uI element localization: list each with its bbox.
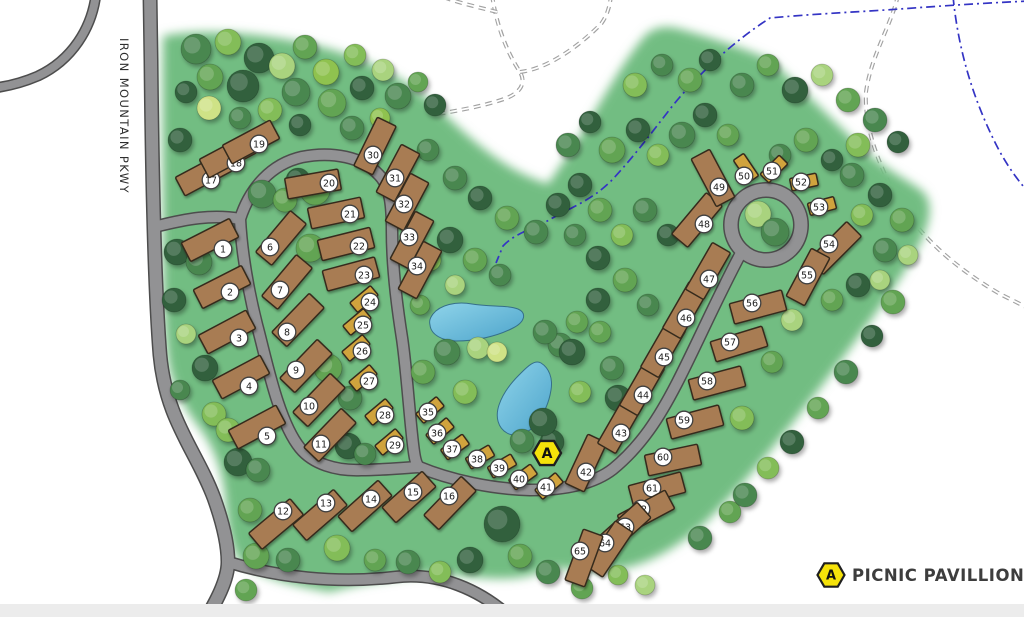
site-number-47: 47 bbox=[703, 274, 715, 285]
site-number-37: 37 bbox=[446, 444, 458, 455]
site-number-20: 20 bbox=[323, 178, 335, 189]
site-number-3: 3 bbox=[236, 333, 242, 344]
tree-highlight bbox=[590, 200, 603, 213]
tree-highlight bbox=[172, 382, 183, 393]
tree-highlight bbox=[251, 183, 266, 198]
site-number-50: 50 bbox=[738, 171, 750, 182]
tree-highlight bbox=[170, 130, 183, 143]
tree-highlight bbox=[823, 291, 835, 303]
tree-highlight bbox=[735, 485, 748, 498]
site-number-8: 8 bbox=[284, 327, 290, 338]
site-number-11: 11 bbox=[315, 439, 327, 450]
tree-highlight bbox=[231, 109, 243, 121]
tree-highlight bbox=[374, 61, 386, 73]
site-number-45: 45 bbox=[658, 352, 670, 363]
tree-highlight bbox=[748, 204, 762, 218]
tree-highlight bbox=[566, 226, 578, 238]
tree-highlight bbox=[571, 383, 583, 395]
site-number-14: 14 bbox=[365, 494, 377, 505]
tree-highlight bbox=[445, 168, 458, 181]
tree-highlight bbox=[695, 105, 708, 118]
site-number-9: 9 bbox=[293, 365, 299, 376]
tree-highlight bbox=[352, 78, 365, 91]
tree-highlight bbox=[719, 126, 731, 138]
trail-core bbox=[520, 0, 611, 72]
tree-highlight bbox=[164, 290, 177, 303]
site-number-22: 22 bbox=[353, 241, 365, 252]
tree-highlight bbox=[838, 90, 851, 103]
site-number-26: 26 bbox=[356, 346, 368, 357]
map-canvas: 1234567891011121314151617181920212223242… bbox=[0, 0, 1024, 617]
site-number-30: 30 bbox=[367, 150, 379, 161]
tree-highlight bbox=[613, 226, 625, 238]
site-number-28: 28 bbox=[379, 410, 391, 421]
tree-highlight bbox=[649, 146, 661, 158]
tree-highlight bbox=[588, 248, 601, 261]
tree-highlight bbox=[200, 67, 214, 81]
tree-highlight bbox=[889, 133, 901, 145]
tree-highlight bbox=[248, 460, 261, 473]
tree-highlight bbox=[842, 165, 855, 178]
tree-highlight bbox=[588, 290, 601, 303]
site-number-53: 53 bbox=[813, 202, 825, 213]
tree-highlight bbox=[177, 83, 189, 95]
pavilion-marker-letter: A bbox=[542, 446, 553, 462]
tree-highlight bbox=[732, 75, 745, 88]
tree-highlight bbox=[299, 237, 314, 252]
tree-highlight bbox=[608, 388, 622, 402]
site-number-29: 29 bbox=[389, 440, 401, 451]
tree-highlight bbox=[602, 358, 615, 371]
tree-highlight bbox=[437, 342, 451, 356]
tree-highlight bbox=[900, 247, 911, 258]
trail-path bbox=[520, 0, 611, 72]
tree-highlight bbox=[591, 323, 603, 335]
tree-highlight bbox=[836, 362, 849, 375]
site-number-36: 36 bbox=[431, 428, 443, 439]
tree-highlight bbox=[659, 226, 671, 238]
site-number-13: 13 bbox=[320, 498, 332, 509]
tree-highlight bbox=[532, 411, 547, 426]
tree-highlight bbox=[469, 339, 481, 351]
site-number-10: 10 bbox=[303, 401, 315, 412]
tree-highlight bbox=[455, 382, 468, 395]
tree-highlight bbox=[278, 550, 291, 563]
site-number-12: 12 bbox=[277, 506, 289, 517]
tree-highlight bbox=[412, 297, 423, 308]
tree-highlight bbox=[759, 56, 771, 68]
tree-highlight bbox=[721, 503, 733, 515]
tree-highlight bbox=[237, 581, 249, 593]
tree-highlight bbox=[870, 185, 883, 198]
tree-highlight bbox=[327, 538, 341, 552]
tree-highlight bbox=[440, 230, 454, 244]
site-number-52: 52 bbox=[795, 177, 807, 188]
tree-highlight bbox=[562, 342, 576, 356]
tree-highlight bbox=[783, 311, 795, 323]
tree-highlight bbox=[848, 135, 861, 148]
tree-highlight bbox=[460, 550, 474, 564]
tree-highlight bbox=[178, 326, 189, 337]
tree-highlight bbox=[321, 92, 336, 107]
campground-site-map: 1234567891011121314151617181920212223242… bbox=[0, 0, 1024, 617]
tree-highlight bbox=[672, 125, 686, 139]
site-number-34: 34 bbox=[411, 261, 423, 272]
tree-highlight bbox=[883, 292, 896, 305]
road-label-iron-mountain-pkwy: IRON MOUNTAIN PKWY bbox=[117, 38, 131, 194]
tree-highlight bbox=[653, 56, 665, 68]
tree-highlight bbox=[497, 208, 510, 221]
tree-highlight bbox=[610, 567, 621, 578]
tree-highlight bbox=[809, 399, 821, 411]
tree-highlight bbox=[291, 116, 303, 128]
tree-highlight bbox=[628, 120, 641, 133]
tree-highlight bbox=[512, 431, 525, 444]
page-bottom-strip bbox=[0, 604, 1024, 617]
site-number-2: 2 bbox=[227, 287, 233, 298]
tree-highlight bbox=[865, 110, 878, 123]
tree-highlight bbox=[637, 577, 648, 588]
site-number-23: 23 bbox=[358, 270, 370, 281]
site-number-44: 44 bbox=[637, 390, 649, 401]
site-number-19: 19 bbox=[253, 139, 265, 150]
site-number-56: 56 bbox=[746, 298, 758, 309]
site-number-6: 6 bbox=[267, 242, 273, 253]
tree-highlight bbox=[247, 46, 264, 63]
tree-highlight bbox=[568, 313, 580, 325]
site-number-51: 51 bbox=[766, 166, 778, 177]
site-number-42: 42 bbox=[580, 467, 592, 478]
tree-highlight bbox=[759, 459, 771, 471]
site-number-24: 24 bbox=[364, 297, 376, 308]
tree-highlight bbox=[639, 296, 651, 308]
tree-highlight bbox=[764, 221, 779, 236]
tree-highlight bbox=[447, 277, 458, 288]
tree-highlight bbox=[295, 37, 308, 50]
tree-highlight bbox=[366, 551, 378, 563]
tree-highlight bbox=[701, 51, 713, 63]
tree-highlight bbox=[558, 135, 571, 148]
tree-highlight bbox=[875, 240, 888, 253]
tree-highlight bbox=[848, 275, 861, 288]
tree-highlight bbox=[892, 210, 905, 223]
site-number-39: 39 bbox=[493, 463, 505, 474]
site-number-33: 33 bbox=[403, 232, 415, 243]
site-number-1: 1 bbox=[220, 244, 226, 255]
tree-highlight bbox=[732, 408, 745, 421]
tree-highlight bbox=[356, 445, 368, 457]
tree-highlight bbox=[796, 130, 809, 143]
site-number-61: 61 bbox=[646, 483, 658, 494]
tree-highlight bbox=[246, 546, 260, 560]
site-number-60: 60 bbox=[657, 452, 669, 463]
tree-highlight bbox=[218, 32, 232, 46]
tree-highlight bbox=[346, 46, 358, 58]
site-number-5: 5 bbox=[264, 431, 270, 442]
tree-highlight bbox=[184, 37, 201, 54]
tree-highlight bbox=[199, 98, 212, 111]
tree-highlight bbox=[419, 141, 431, 153]
tree-highlight bbox=[602, 140, 616, 154]
site-number-21: 21 bbox=[344, 209, 356, 220]
tree-highlight bbox=[570, 175, 583, 188]
tree-highlight bbox=[813, 66, 825, 78]
site-number-65: 65 bbox=[574, 546, 586, 557]
tree-highlight bbox=[388, 86, 402, 100]
picnic-pavilion-marker: A bbox=[533, 441, 561, 465]
site-number-41: 41 bbox=[540, 482, 552, 493]
tree-highlight bbox=[782, 432, 795, 445]
stream-path bbox=[953, 0, 1024, 193]
tree-highlight bbox=[316, 62, 330, 76]
tree-highlight bbox=[470, 188, 483, 201]
tree-highlight bbox=[260, 100, 273, 113]
tree-highlight bbox=[853, 206, 865, 218]
tree-highlight bbox=[680, 70, 693, 83]
site-number-35: 35 bbox=[422, 407, 434, 418]
site-number-55: 55 bbox=[801, 270, 813, 281]
tree-highlight bbox=[763, 353, 775, 365]
legend-label: PICNIC PAVILLION bbox=[852, 566, 1024, 585]
tree-highlight bbox=[872, 272, 883, 283]
tree-highlight bbox=[285, 81, 300, 96]
site-number-38: 38 bbox=[471, 454, 483, 465]
site-number-31: 31 bbox=[389, 173, 401, 184]
tree-highlight bbox=[615, 270, 628, 283]
site-number-43: 43 bbox=[615, 428, 627, 439]
tree-highlight bbox=[230, 73, 248, 91]
tree-highlight bbox=[510, 546, 523, 559]
site-number-25: 25 bbox=[357, 320, 369, 331]
tree-highlight bbox=[785, 80, 799, 94]
site-number-15: 15 bbox=[407, 487, 419, 498]
site-number-4: 4 bbox=[246, 381, 252, 392]
tree-highlight bbox=[398, 552, 411, 565]
tree-highlight bbox=[635, 200, 648, 213]
site-number-46: 46 bbox=[680, 313, 692, 324]
legend: A PICNIC PAVILLION bbox=[818, 563, 1024, 586]
site-number-7: 7 bbox=[277, 285, 283, 296]
site-number-16: 16 bbox=[443, 491, 455, 502]
tree-highlight bbox=[410, 74, 421, 85]
tree-highlight bbox=[863, 327, 875, 339]
tree-highlight bbox=[489, 344, 500, 355]
tree-highlight bbox=[538, 562, 551, 575]
tree-highlight bbox=[167, 242, 181, 256]
tree-highlight bbox=[526, 222, 539, 235]
site-number-27: 27 bbox=[363, 376, 375, 387]
tree-highlight bbox=[272, 56, 286, 70]
tree-highlight bbox=[690, 528, 703, 541]
tree-highlight bbox=[240, 500, 253, 513]
site-number-40: 40 bbox=[513, 474, 525, 485]
tree-highlight bbox=[342, 118, 355, 131]
tree-highlight bbox=[625, 75, 638, 88]
tree-highlight bbox=[465, 250, 478, 263]
tree-highlight bbox=[581, 113, 593, 125]
tree-highlight bbox=[204, 404, 217, 417]
site-number-54: 54 bbox=[823, 239, 835, 250]
site-number-48: 48 bbox=[698, 219, 710, 230]
tree-highlight bbox=[535, 322, 548, 335]
site-number-49: 49 bbox=[713, 182, 725, 193]
legend-marker-letter: A bbox=[826, 569, 836, 584]
tree-highlight bbox=[426, 96, 438, 108]
tree-highlight bbox=[431, 563, 443, 575]
site-number-59: 59 bbox=[678, 415, 690, 426]
site-number-57: 57 bbox=[724, 337, 736, 348]
tree-highlight bbox=[548, 195, 561, 208]
tree-highlight bbox=[227, 451, 242, 466]
tree-highlight bbox=[823, 151, 835, 163]
site-number-32: 32 bbox=[398, 199, 410, 210]
tree-highlight bbox=[195, 358, 209, 372]
tree-highlight bbox=[488, 510, 508, 530]
tree-highlight bbox=[413, 362, 426, 375]
tree-highlight bbox=[491, 266, 503, 278]
site-number-58: 58 bbox=[701, 376, 713, 387]
